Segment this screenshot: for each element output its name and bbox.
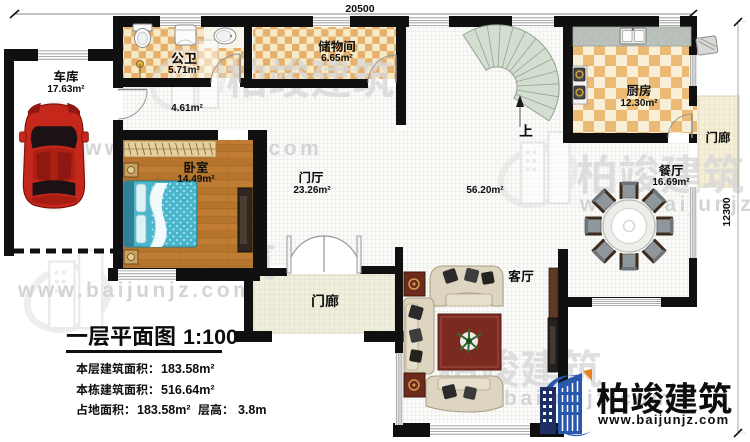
svg-text:6.65m²: 6.65m² (321, 53, 353, 64)
svg-text:12300: 12300 (721, 197, 733, 226)
svg-text:4.61m²: 4.61m² (171, 103, 203, 114)
svg-text:5.71m²: 5.71m² (168, 65, 200, 76)
svg-text:www.baijunjz.com: www.baijunjz.com (17, 279, 255, 302)
svg-text:23.26m²: 23.26m² (293, 185, 331, 196)
svg-text:17.63m²: 17.63m² (47, 84, 85, 95)
svg-text:12.30m²: 12.30m² (620, 98, 658, 109)
svg-text:20500: 20500 (345, 3, 374, 15)
svg-text:56.20m²: 56.20m² (466, 185, 504, 196)
svg-text:516.64m²: 516.64m² (161, 383, 215, 397)
svg-text:183.58m²: 183.58m² (161, 362, 215, 376)
svg-text:www.baijunjz.com: www.baijunjz.com (597, 412, 729, 427)
svg-text:3.8m: 3.8m (238, 403, 267, 417)
svg-text:16.69m²: 16.69m² (652, 177, 690, 188)
svg-text:183.58m²: 183.58m² (137, 403, 191, 417)
svg-text:14.49m²: 14.49m² (177, 174, 215, 185)
svg-text:1:100: 1:100 (183, 325, 238, 349)
